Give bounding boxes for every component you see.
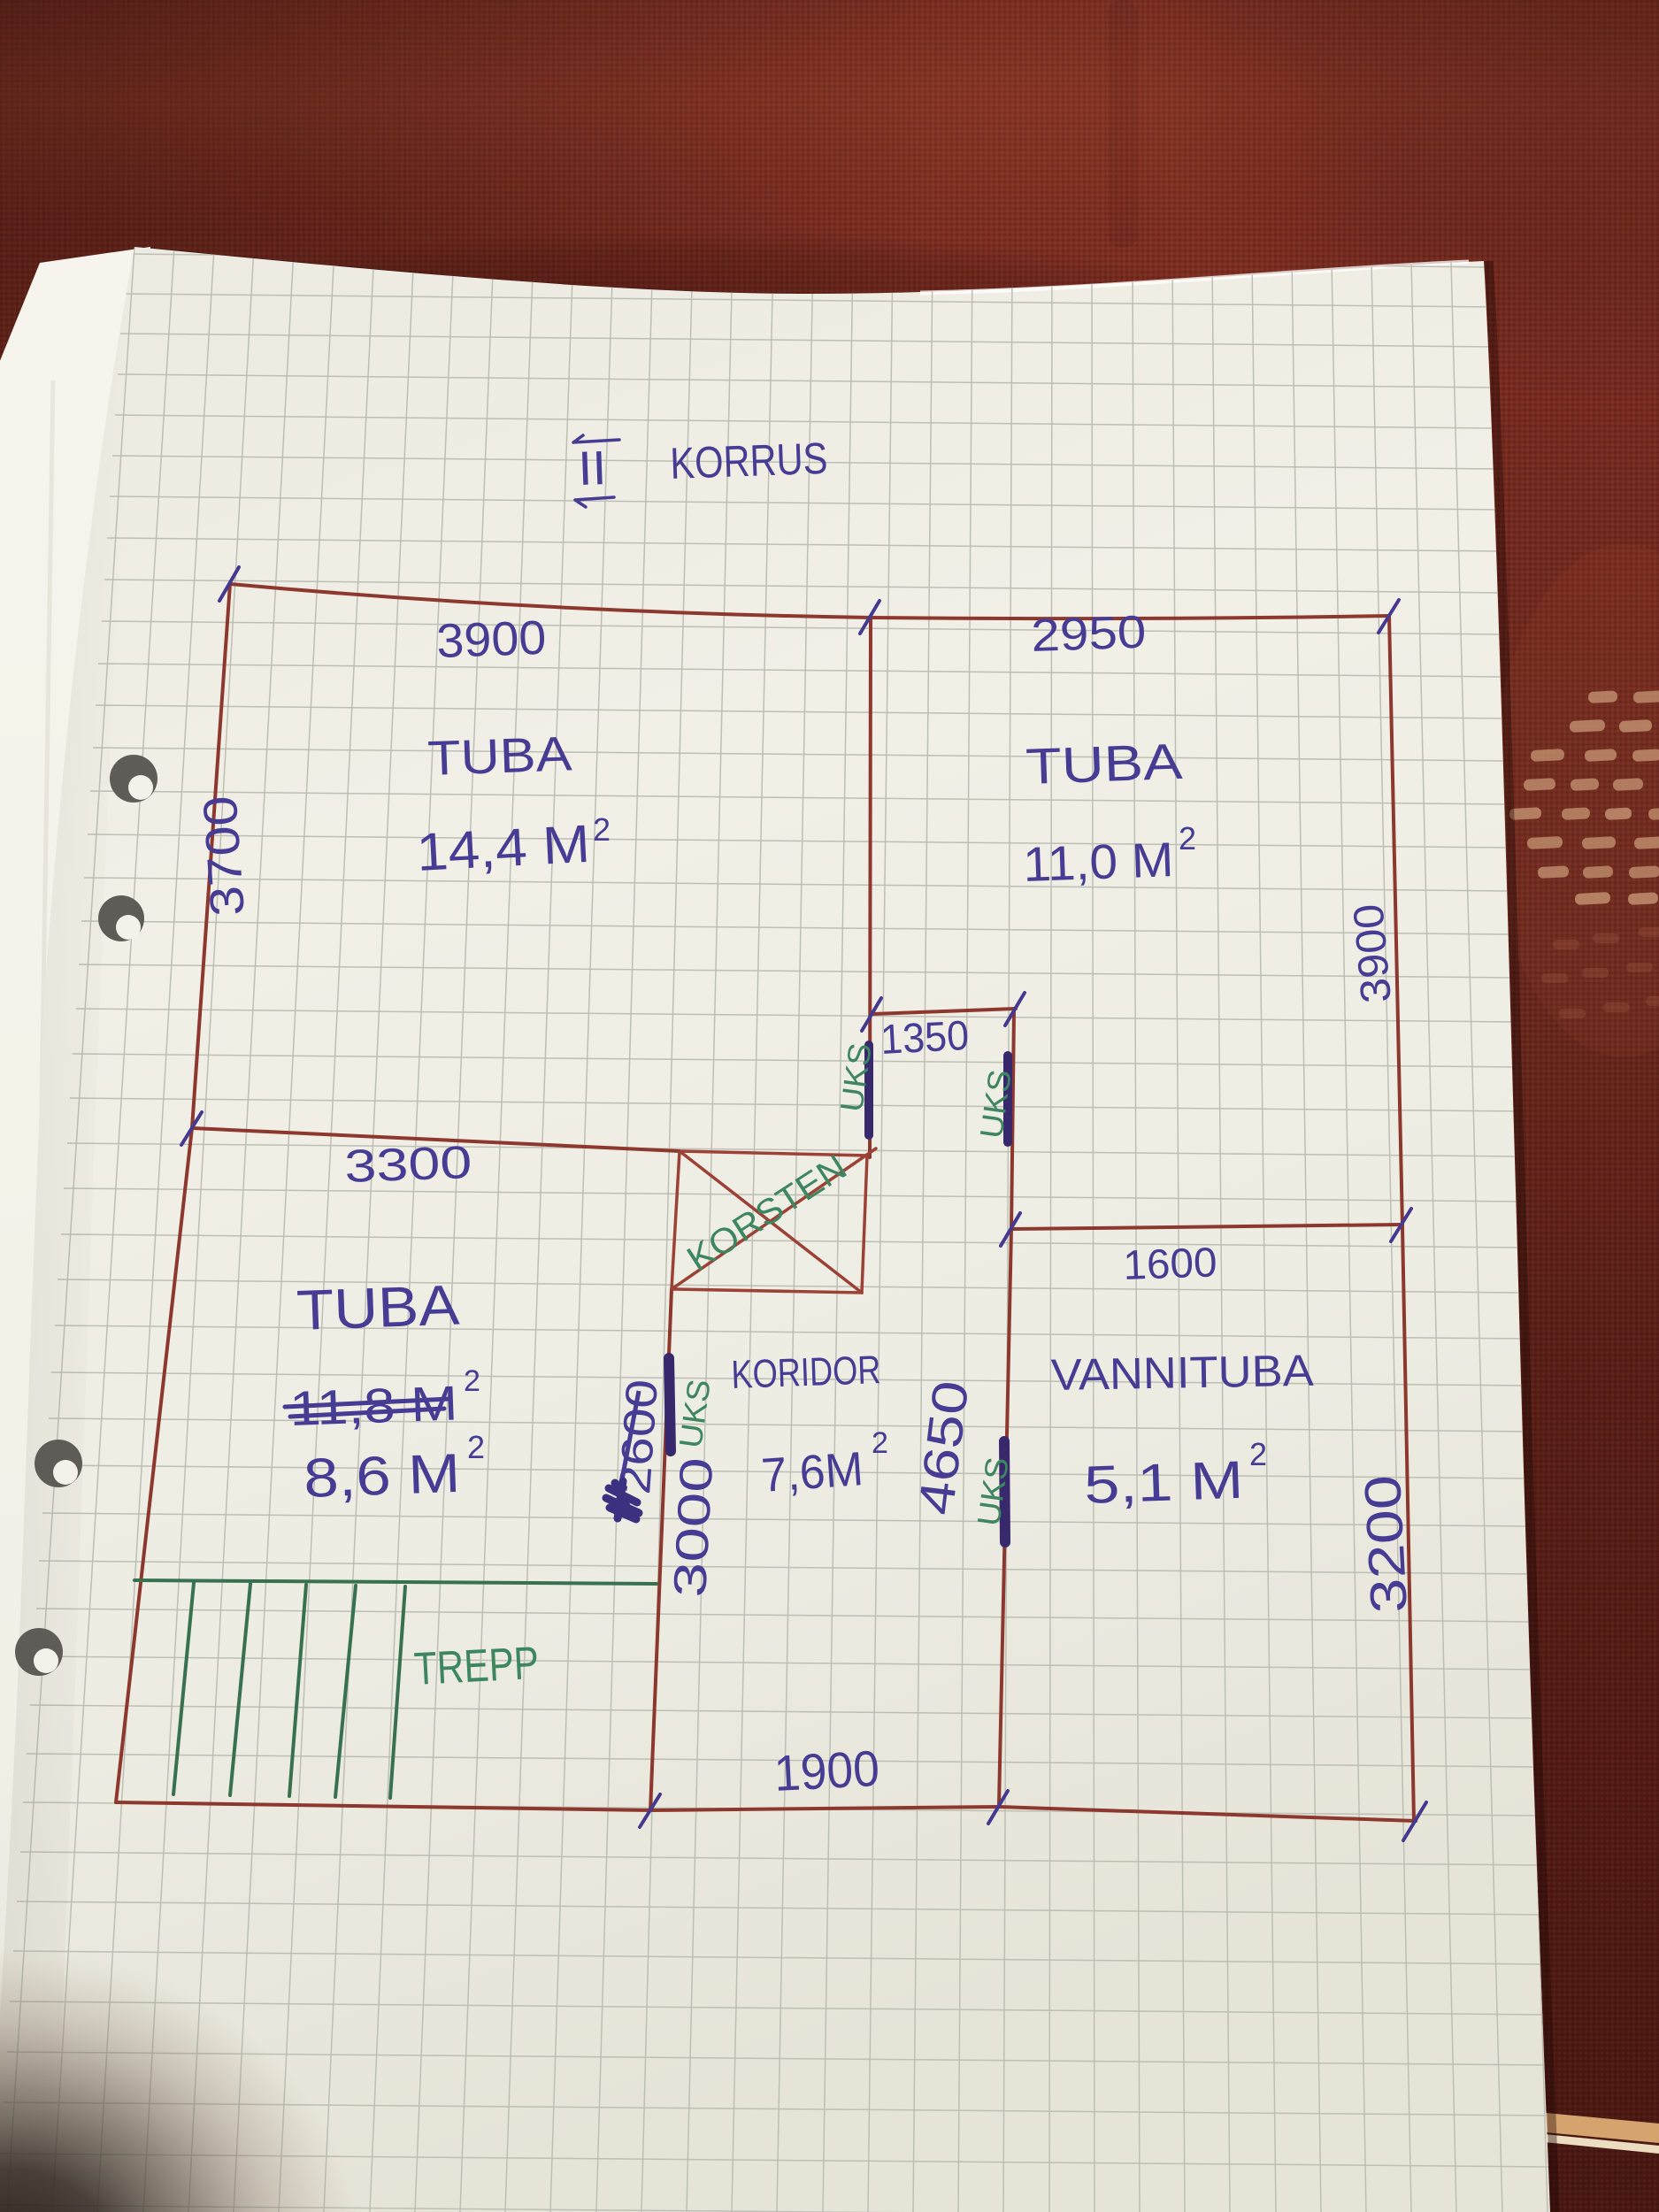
svg-text:5,1 M: 5,1 M: [1083, 1450, 1244, 1515]
svg-text:2: 2: [872, 1426, 888, 1460]
svg-text:11,0 M: 11,0 M: [1022, 832, 1174, 892]
svg-text:KORRUS: KORRUS: [669, 434, 828, 488]
svg-text:2: 2: [467, 1429, 485, 1465]
svg-text:2: 2: [464, 1364, 480, 1398]
svg-text:2: 2: [1179, 820, 1196, 856]
svg-text:3900: 3900: [435, 611, 547, 668]
svg-text:1600: 1600: [1122, 1238, 1217, 1288]
svg-text:2950: 2950: [1030, 606, 1147, 662]
svg-text:1350: 1350: [879, 1011, 971, 1063]
svg-text:1900: 1900: [772, 1740, 880, 1802]
svg-text:14,4 M: 14,4 M: [415, 814, 591, 882]
svg-text:2: 2: [1249, 1436, 1267, 1472]
svg-text:TUBA: TUBA: [296, 1273, 461, 1342]
svg-text:3900: 3900: [1345, 902, 1401, 1004]
svg-text:VANNITUBA: VANNITUBA: [1050, 1346, 1315, 1400]
svg-text:8,6 M: 8,6 M: [303, 1443, 461, 1509]
svg-text:3700: 3700: [194, 794, 255, 918]
svg-text:TREPP: TREPP: [413, 1638, 541, 1695]
svg-text:3000: 3000: [664, 1456, 723, 1599]
svg-text:II: II: [577, 442, 607, 495]
svg-text:3300: 3300: [343, 1137, 472, 1193]
svg-text:2: 2: [593, 811, 611, 848]
svg-text:KORIDOR: KORIDOR: [731, 1347, 882, 1397]
svg-text:3200: 3200: [1354, 1474, 1418, 1615]
svg-text:TUBA: TUBA: [426, 726, 572, 786]
svg-text:7,6M: 7,6M: [760, 1442, 865, 1502]
svg-text:TUBA: TUBA: [1025, 733, 1183, 795]
